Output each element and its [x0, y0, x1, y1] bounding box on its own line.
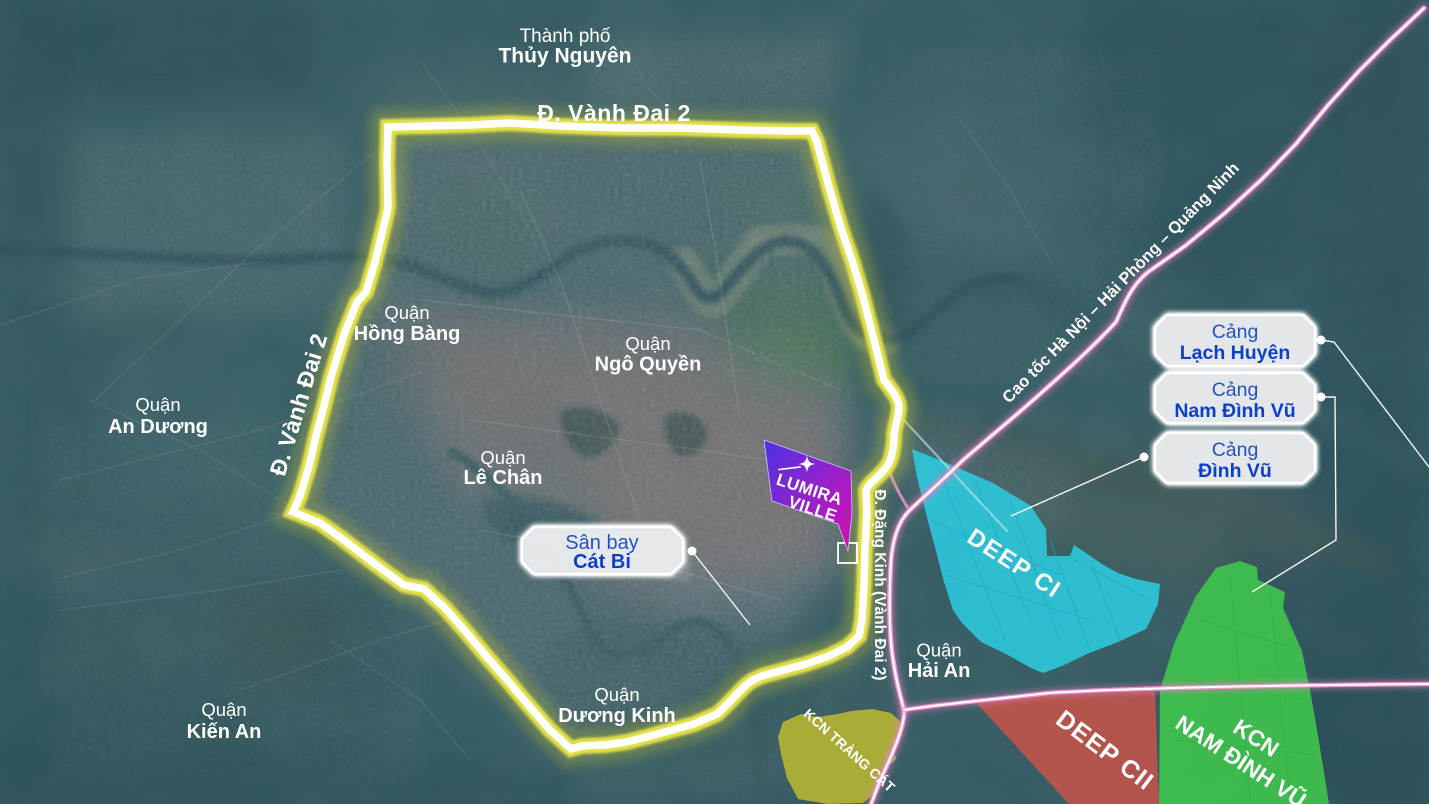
svg-text:Quận: Quận [625, 333, 670, 354]
svg-text:Kiến An: Kiến An [187, 721, 262, 743]
svg-text:Cát Bi: Cát Bi [573, 551, 631, 573]
svg-text:Nam Đình Vũ: Nam Đình Vũ [1174, 400, 1295, 422]
svg-text:Lê Chân: Lê Chân [464, 467, 543, 489]
svg-text:Ngô Quyền: Ngô Quyền [595, 354, 702, 376]
svg-text:An Dương: An Dương [108, 416, 208, 438]
svg-text:Thủy Nguyên: Thủy Nguyên [498, 45, 631, 68]
svg-text:Đ. Đặng Kinh (Vành Đai 2): Đ. Đặng Kinh (Vành Đai 2) [871, 489, 888, 680]
svg-text:Đ. Vành Đai 2: Đ. Vành Đai 2 [537, 100, 690, 126]
svg-text:Hồng Bàng: Hồng Bàng [354, 323, 461, 345]
svg-text:Cảng: Cảng [1212, 321, 1259, 343]
svg-text:Hải An: Hải An [908, 660, 971, 682]
svg-text:Quận: Quận [201, 699, 246, 720]
svg-text:Quận: Quận [594, 684, 639, 705]
svg-text:Lạch Huyện: Lạch Huyện [1180, 342, 1291, 364]
svg-text:Cảng: Cảng [1212, 439, 1259, 461]
svg-text:Dương Kinh: Dương Kinh [558, 705, 676, 727]
svg-text:Cảng: Cảng [1212, 379, 1259, 401]
svg-text:Quận: Quận [384, 302, 429, 323]
svg-text:Đình Vũ: Đình Vũ [1198, 460, 1272, 482]
svg-text:Quận: Quận [916, 640, 961, 661]
svg-text:Quận: Quận [135, 394, 180, 415]
svg-text:Quận: Quận [480, 447, 525, 468]
